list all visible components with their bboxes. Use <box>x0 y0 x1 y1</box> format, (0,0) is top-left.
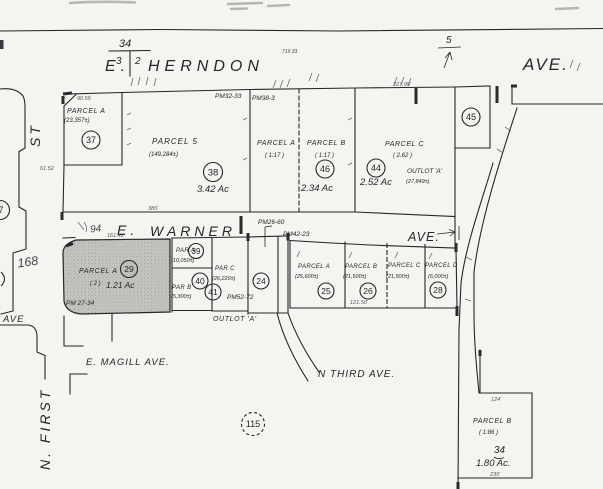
scribble-strokes <box>78 222 87 232</box>
magill-corner-north <box>64 316 83 346</box>
parcel-number-text: 29 <box>124 264 134 274</box>
dim-12150: 121.50' <box>350 300 369 306</box>
scan-smudge <box>70 2 135 3</box>
north-arrow: 5 <box>438 35 461 68</box>
street-label-herndon-ave: AVE. <box>522 55 569 74</box>
street-label-first-st: ST <box>27 123 43 147</box>
tick-marks <box>309 73 319 82</box>
warner-ave-arrow <box>437 226 459 240</box>
section-number-top: 34 <box>119 38 131 50</box>
parcel-c21-label: PARCEL C <box>388 263 421 269</box>
scribble-94: 94 <box>90 223 103 235</box>
scan-mark <box>0 40 4 49</box>
scan-artifacts <box>0 2 578 49</box>
parcel-map-scan: 34 3 2 5 E. HERNDON AVE. E. WARNER AVE. … <box>0 0 603 489</box>
parcel-a37-area: (23,357±) <box>64 118 90 124</box>
parcel-number-7-partial: 7 <box>0 201 10 220</box>
street-label-west-ave: AVE <box>2 314 25 325</box>
street-label-herndon: HERNDON <box>148 58 264 75</box>
parcel-pb-area: ( 1:86 ) <box>479 430 498 436</box>
north-arrow-lines <box>438 47 461 68</box>
parcel-number-41: 41 <box>205 284 221 300</box>
parcel-a37-boundary <box>64 93 122 166</box>
dim-22795: 227.95' <box>392 82 412 88</box>
parcel-number-text: 40 <box>195 276 205 286</box>
dim-9055: 90.55 <box>77 96 92 102</box>
par-c-area: (26,220±) <box>212 276 236 282</box>
parcel-a17-label: PARCEL A <box>257 140 296 147</box>
parcel-number-text: 46 <box>320 164 330 174</box>
pm-label-32-33: PM32-33 <box>215 93 242 100</box>
plat-map-svg: 34 3 2 5 E. HERNDON AVE. E. WARNER AVE. … <box>0 0 603 489</box>
par-b-area: (5,300±) <box>171 294 192 300</box>
parcel-b26-label: PARCEL B <box>345 264 377 270</box>
section-number-right: 2 <box>134 56 141 67</box>
parcel-a17-area: ( 1:17 ) <box>265 153 284 159</box>
parcel-a37-label: PARCEL A <box>67 108 106 115</box>
top-boundary-line <box>0 29 603 32</box>
street-label-third-ave: N THIRD AVE. <box>318 369 395 380</box>
parcel-pb-section: 34 <box>494 445 506 456</box>
strip-24-boundaries <box>248 236 288 313</box>
outlot-a-bottom-label: OUTLOT 'A' <box>213 316 257 323</box>
parcel-a29-extra: ( 2 ) <box>90 281 101 287</box>
parcel-number-text: 28 <box>433 285 443 295</box>
scribble-168: 168 <box>16 254 39 271</box>
magill-corner-south <box>70 374 87 394</box>
parcel-number-24: 24 <box>253 273 269 289</box>
parcel-number-text: 45 <box>466 112 476 122</box>
dim-124: 124' <box>491 397 502 403</box>
outlot-a-top-area: (27,849±) <box>406 179 430 185</box>
pm-label-52-72: PM52-72 <box>227 294 254 301</box>
parcel-number-text: 39 <box>192 247 201 256</box>
parcel-b26-area: (21,500±) <box>343 274 367 280</box>
parcel-number-37: 37 <box>82 131 100 149</box>
parcel-number-text: 26 <box>363 286 373 296</box>
dim-235: 235' <box>489 472 501 478</box>
dim-385: 385' <box>148 206 159 212</box>
herndon-south-row <box>66 86 490 94</box>
herndon-east-corner <box>512 87 603 105</box>
pm-label-27-34: PM 27-34 <box>66 300 95 307</box>
street-label-n-first: N. FIRST <box>37 388 53 470</box>
parcel-b17-acres: 2.34 Ac <box>300 183 333 194</box>
parcel-d28-label: PARCEL D <box>425 263 458 269</box>
tick-marks <box>297 251 432 259</box>
dim-16142: 161.42' <box>107 233 126 239</box>
parcel-pb-label: PARCEL B <box>473 418 512 425</box>
pm-label-42-23: PM42-23 <box>283 231 310 238</box>
parcel-d28-area: (6,000±) <box>428 274 449 280</box>
warner-north-row <box>63 212 455 217</box>
parcel-number-text: 44 <box>371 163 381 173</box>
street-label-warner: WARNER <box>150 223 236 239</box>
parcel-c44-acres: 2.52 Ac <box>359 177 392 188</box>
parcel-c21-area: (21,500±) <box>386 274 410 280</box>
parcel-number-text: 38 <box>208 167 219 178</box>
pm-label-26-60: PM26-60 <box>258 219 285 226</box>
parcel-number-text: 37 <box>86 135 96 145</box>
parcel-number-text: 25 <box>321 286 331 296</box>
parcel-5-label: PARCEL 5 <box>152 137 198 146</box>
parcel-a29-acres: 1.21 Ac <box>106 280 135 290</box>
par-c-label: PAR C <box>215 266 235 272</box>
street-label-warner-ave: AVE. <box>407 230 440 244</box>
tick-marks <box>570 60 580 71</box>
parcel-a29-label: PARCEL A <box>79 268 118 275</box>
tick-marks <box>273 79 290 88</box>
parcel-5-acres: 3.42 Ac <box>197 184 229 195</box>
outlot-a-top-label: OUTLOT 'A' <box>407 168 443 175</box>
third-ave-west-edge <box>458 163 493 489</box>
west-edge-paren-mark <box>1 272 5 286</box>
par-a-area: (10,050±) <box>171 258 195 264</box>
parcel-a25-label: PARCEL A <box>298 264 330 270</box>
tick-marks <box>465 127 511 301</box>
parcel-number-115: 115 <box>242 413 265 436</box>
street-label-magill: E. MAGILL AVE. <box>86 357 170 368</box>
scan-smudge <box>228 3 289 9</box>
parcel-number-26: 26 <box>360 283 376 299</box>
parcel-number-44: 44 <box>367 159 385 177</box>
parcel-number-text: 41 <box>208 287 218 297</box>
parcel-a25-area: (25,600±) <box>295 274 319 280</box>
parcel-number-text: 115 <box>246 419 260 429</box>
parcel-number-40: 40 <box>192 273 208 289</box>
par-b-label: PAR B <box>172 285 192 291</box>
first-st-west-curb-lower <box>0 325 45 379</box>
parcel-pb-acres: 1.80 Ac. <box>476 458 511 469</box>
parcel-b17-area: ( 1:17 ) <box>315 153 334 159</box>
parcel-number-45: 45 <box>462 108 480 126</box>
tick-marks <box>127 113 131 145</box>
parcel-number-39: 39 <box>189 244 204 259</box>
scan-smudge <box>556 8 578 9</box>
parcel-number-38: 38 <box>204 163 223 182</box>
parcel-number-28: 28 <box>430 282 446 298</box>
north-arrow-number: 5 <box>446 35 452 46</box>
parcel-c44-area: ( 2.62 ) <box>393 153 412 159</box>
tick-marks <box>131 77 156 86</box>
pm-label-38-3: PM38-3 <box>252 95 275 102</box>
street-label-herndon-e: E. <box>105 58 130 75</box>
parcel-number-25: 25 <box>318 283 334 299</box>
parcel-number-text: 24 <box>256 276 266 286</box>
parcel-c44-label: PARCEL C <box>385 141 425 148</box>
parcel-5-area: (149,284±) <box>149 152 178 158</box>
dim-6152: 61.52 <box>40 166 54 172</box>
scribble-719-33: 719 33 <box>282 49 298 55</box>
alley-curve-east <box>288 313 319 372</box>
parcel-b17-label: PARCEL B <box>307 140 346 147</box>
parcel-number-text: 7 <box>0 205 4 215</box>
parcel-number-46: 46 <box>316 160 334 178</box>
